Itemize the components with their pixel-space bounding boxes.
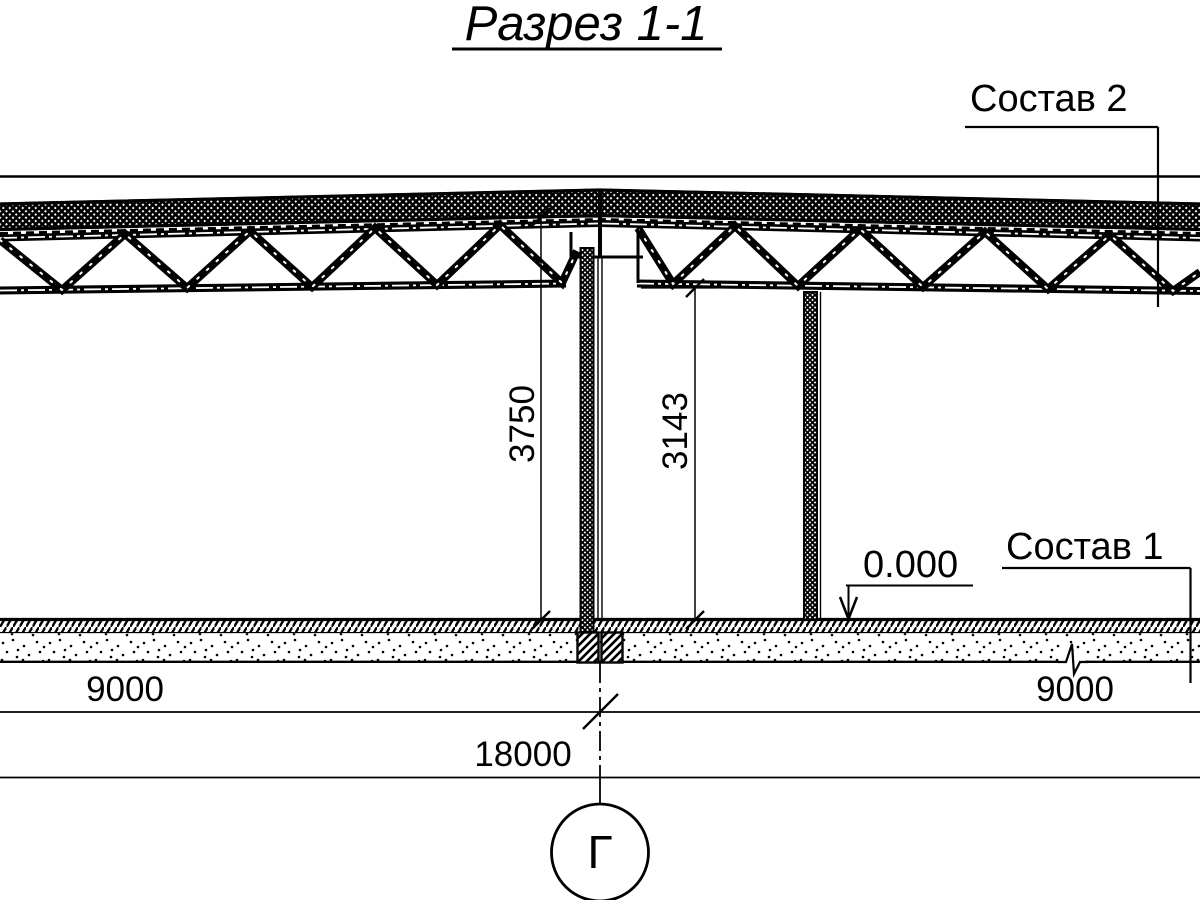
axis-marker: Г (552, 663, 649, 900)
floor-composition-label: Состав 1 (1006, 526, 1164, 568)
column-right (804, 292, 821, 620)
roof-structure (0, 177, 1200, 292)
column-center (581, 248, 603, 632)
elevation-mark: 0.000 (840, 544, 973, 619)
axis-label: Г (588, 826, 613, 878)
floor-screed-hatch (0, 621, 1200, 632)
dimension-text-9000-right: 9000 (1036, 670, 1114, 709)
section-drawing-sheet: 3750 3143 9000 9000 18000 Г 0.000 Состав… (0, 0, 1200, 900)
floor-concrete-stipple (0, 633, 1200, 661)
drawing-title-block: Разрез 1-1 (452, 0, 722, 51)
dimension-text-3143: 3143 (656, 392, 695, 470)
dimension-text-3750: 3750 (503, 385, 542, 463)
dimension-text-18000: 18000 (474, 735, 571, 774)
dimension-text-9000-left: 9000 (86, 670, 164, 709)
elevation-value: 0.000 (863, 544, 958, 586)
drawing-title: Разрез 1-1 (465, 0, 708, 51)
roof-composition-label: Состав 2 (970, 78, 1128, 120)
section-drawing: 3750 3143 9000 9000 18000 Г 0.000 Состав… (0, 0, 1200, 900)
dimension-height-3143: 3143 (641, 279, 716, 629)
